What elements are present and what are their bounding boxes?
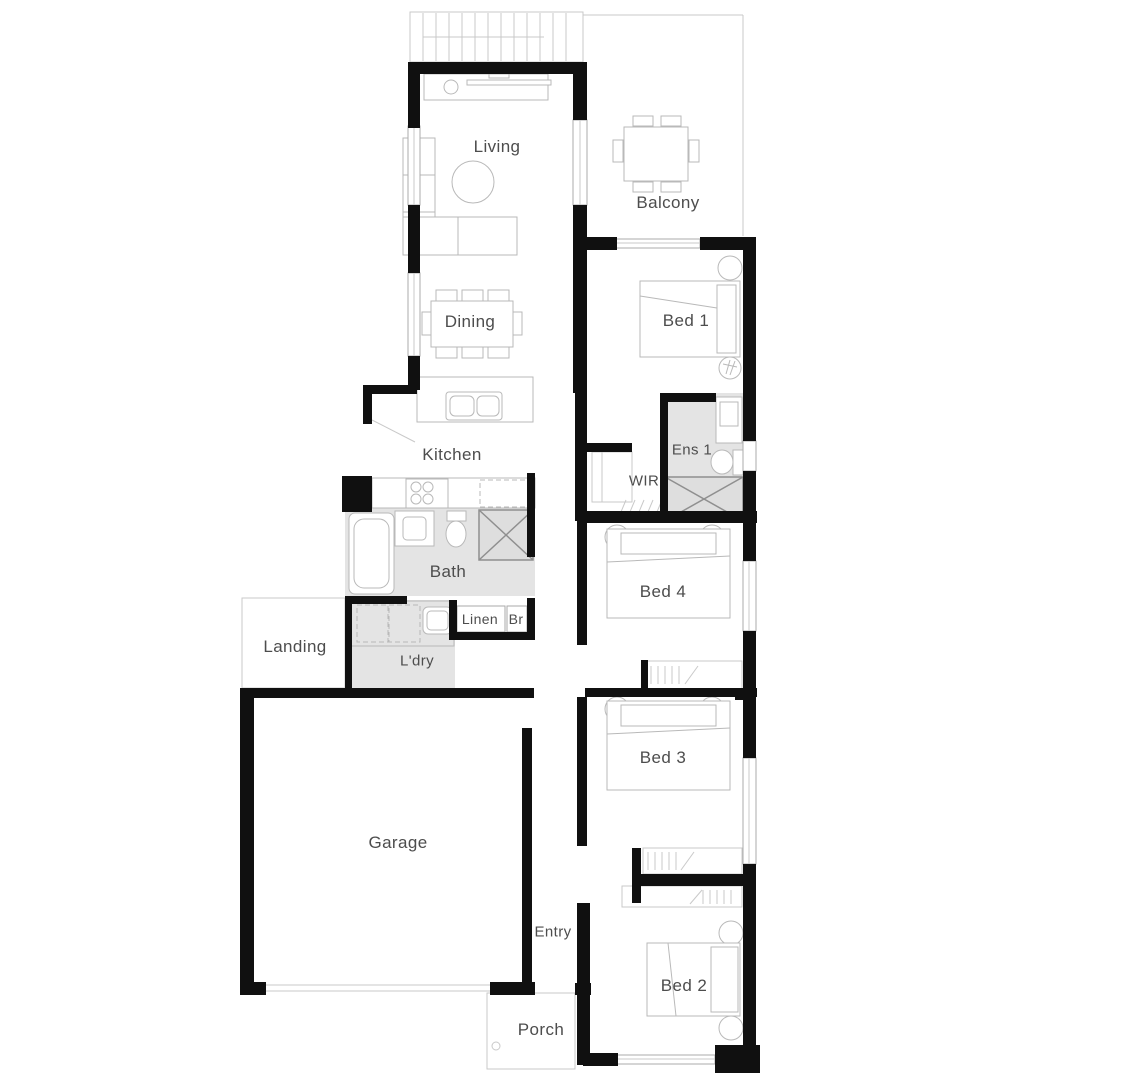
bath-toilet-icon — [446, 511, 466, 547]
room-label-bed3: Bed 3 — [640, 748, 686, 768]
bath-shower-icon — [479, 510, 533, 560]
room-label-living: Living — [474, 137, 521, 157]
room-label-br: Br — [509, 611, 524, 627]
room-label-landing: Landing — [263, 637, 326, 657]
room-label-balcony: Balcony — [636, 193, 699, 213]
room-label-bed4: Bed 4 — [640, 582, 686, 602]
outdoor-table-icon — [613, 116, 699, 192]
door-swing-icon — [372, 420, 415, 442]
bed-icon-bed3 — [605, 697, 730, 790]
room-label-ens1: Ens 1 — [672, 442, 712, 459]
bathtub-icon — [349, 513, 394, 594]
room-label-garage: Garage — [368, 833, 427, 853]
wir-shelves-icon — [592, 452, 632, 502]
tv-unit-icon — [424, 74, 551, 100]
bed-icon-bed1 — [640, 256, 742, 357]
floor-plan: Living Balcony Bed 1 Dining Kitchen Ens … — [0, 0, 1133, 1080]
kitchen-bench-icon — [372, 478, 535, 508]
room-label-linen: Linen — [462, 611, 498, 627]
room-label-ldry: L'dry — [400, 653, 434, 670]
coffee-table-icon — [452, 161, 494, 203]
room-label-dining: Dining — [445, 312, 496, 332]
cooktop-icon — [406, 479, 448, 508]
island-bench-icon — [417, 377, 533, 422]
room-label-bath: Bath — [430, 562, 467, 582]
ens-toilet-icon — [711, 450, 743, 475]
room-label-bed2: Bed 2 — [661, 976, 707, 996]
garage-door-icon — [266, 985, 490, 991]
wardrobe-icon-bed3 — [646, 661, 742, 689]
wardrobe-icon-bed3-south — [643, 848, 742, 874]
floor-plan-drawing — [0, 0, 1133, 1080]
room-label-entry: Entry — [534, 924, 571, 941]
room-label-kitchen: Kitchen — [422, 445, 482, 465]
bed-icon-bed4 — [605, 525, 730, 618]
room-label-bed1: Bed 1 — [663, 311, 709, 331]
deck-icon — [410, 12, 583, 62]
room-label-porch: Porch — [518, 1020, 564, 1040]
ceiling-fan-icon — [719, 357, 741, 379]
ens-vanity-icon — [716, 397, 742, 443]
room-label-wir: WIR — [629, 473, 659, 490]
laundry-sink-icon — [423, 607, 452, 634]
bath-vanity-icon — [395, 511, 434, 546]
